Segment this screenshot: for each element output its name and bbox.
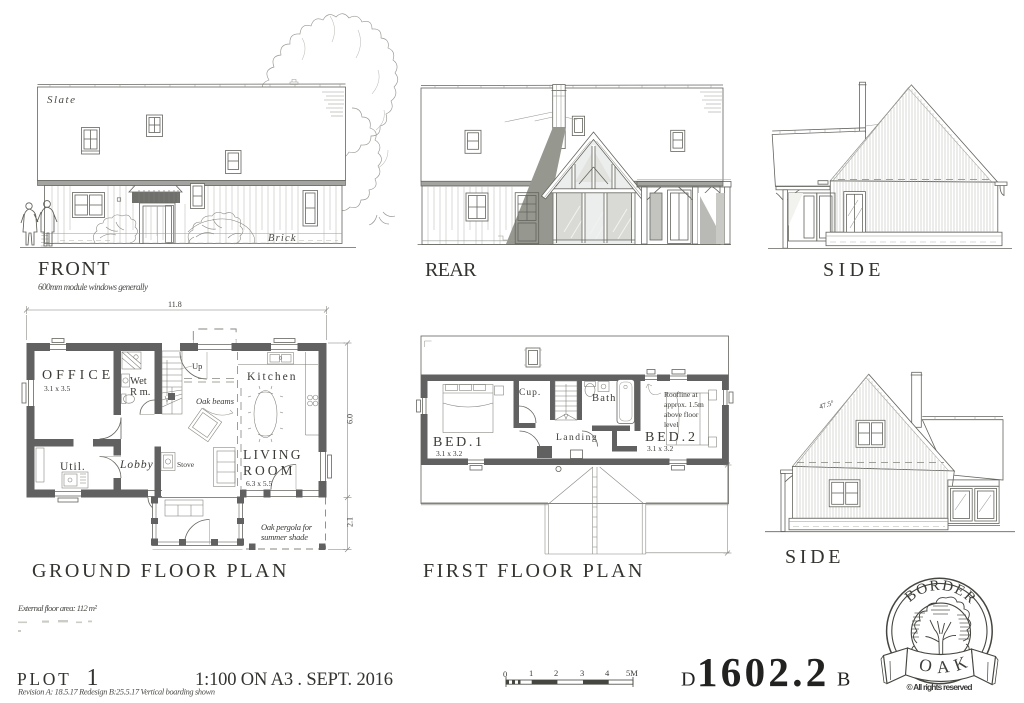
svg-text:External floor area: 112 m²: External floor area: 112 m² — [17, 603, 97, 613]
svg-text:BED.2: BED.2 — [645, 430, 699, 445]
svg-text:Oak pergola for: Oak pergola for — [261, 522, 313, 532]
svg-text:SIDE: SIDE — [785, 546, 846, 568]
svg-text:FIRST FLOOR PLAN: FIRST FLOOR PLAN — [423, 560, 648, 582]
svg-text:Stove: Stove — [177, 460, 195, 469]
svg-text:SIDE: SIDE — [823, 259, 886, 281]
svg-text:BED.1: BED.1 — [433, 435, 486, 450]
svg-text:Roofline at: Roofline at — [664, 390, 698, 399]
svg-text:PLOT: PLOT — [17, 669, 73, 689]
svg-text:6.3 x 5.5: 6.3 x 5.5 — [246, 479, 273, 488]
svg-text:ROOM: ROOM — [243, 463, 296, 478]
svg-text:1602.2: 1602.2 — [697, 649, 830, 695]
svg-text:summer shade: summer shade — [261, 532, 308, 542]
svg-text:FRONT: FRONT — [38, 258, 115, 280]
svg-text:LIVING: LIVING — [243, 447, 304, 462]
svg-text:1:100 ON A3 . SEPT. 2016: 1:100 ON A3 . SEPT. 2016 — [195, 670, 394, 690]
svg-text:© All rights reserved: © All rights reserved — [907, 682, 973, 692]
svg-text:GROUND FLOOR PLAN: GROUND FLOOR PLAN — [32, 560, 292, 582]
svg-text:2: 2 — [554, 668, 558, 678]
svg-text:above floor: above floor — [664, 410, 699, 419]
svg-text:Bath: Bath — [592, 393, 617, 404]
svg-text:3.1 x 3.2: 3.1 x 3.2 — [647, 444, 674, 453]
svg-text:approx. 1.5m: approx. 1.5m — [664, 400, 704, 409]
svg-text:R m.: R m. — [130, 387, 150, 398]
svg-text:3.1 x 3.2: 3.1 x 3.2 — [436, 449, 463, 458]
svg-text:level: level — [664, 420, 679, 429]
svg-text:OFFICE: OFFICE — [42, 368, 114, 383]
svg-text:1: 1 — [529, 668, 533, 678]
svg-text:Oak beams: Oak beams — [196, 396, 235, 406]
svg-text:2.1: 2.1 — [346, 517, 355, 527]
svg-text:Cup.: Cup. — [519, 388, 541, 398]
svg-text:Util.: Util. — [60, 461, 86, 473]
svg-text:600mm module windows generally: 600mm module windows generally — [38, 282, 148, 292]
svg-text:3: 3 — [580, 668, 584, 678]
svg-text:Kitchen: Kitchen — [247, 371, 298, 383]
svg-text:6.0: 6.0 — [346, 414, 355, 424]
svg-text:D: D — [681, 669, 695, 691]
svg-text:Slate: Slate — [47, 94, 77, 106]
svg-text:B: B — [837, 669, 850, 691]
svg-text:11.8: 11.8 — [168, 300, 182, 309]
svg-text:Lobby: Lobby — [119, 459, 154, 471]
svg-text:REAR: REAR — [425, 259, 482, 281]
svg-text:Up: Up — [192, 361, 202, 371]
svg-text:0: 0 — [503, 669, 507, 679]
svg-text:5M: 5M — [626, 668, 638, 678]
svg-text:Wet: Wet — [130, 376, 147, 387]
svg-text:Brick: Brick — [268, 233, 297, 244]
svg-text:Revision A: 18.5.17 Redesign: Revision A: 18.5.17 Redesign B:25.5.17 V… — [17, 688, 215, 697]
svg-text:3.1 x 3.5: 3.1 x 3.5 — [44, 384, 71, 393]
